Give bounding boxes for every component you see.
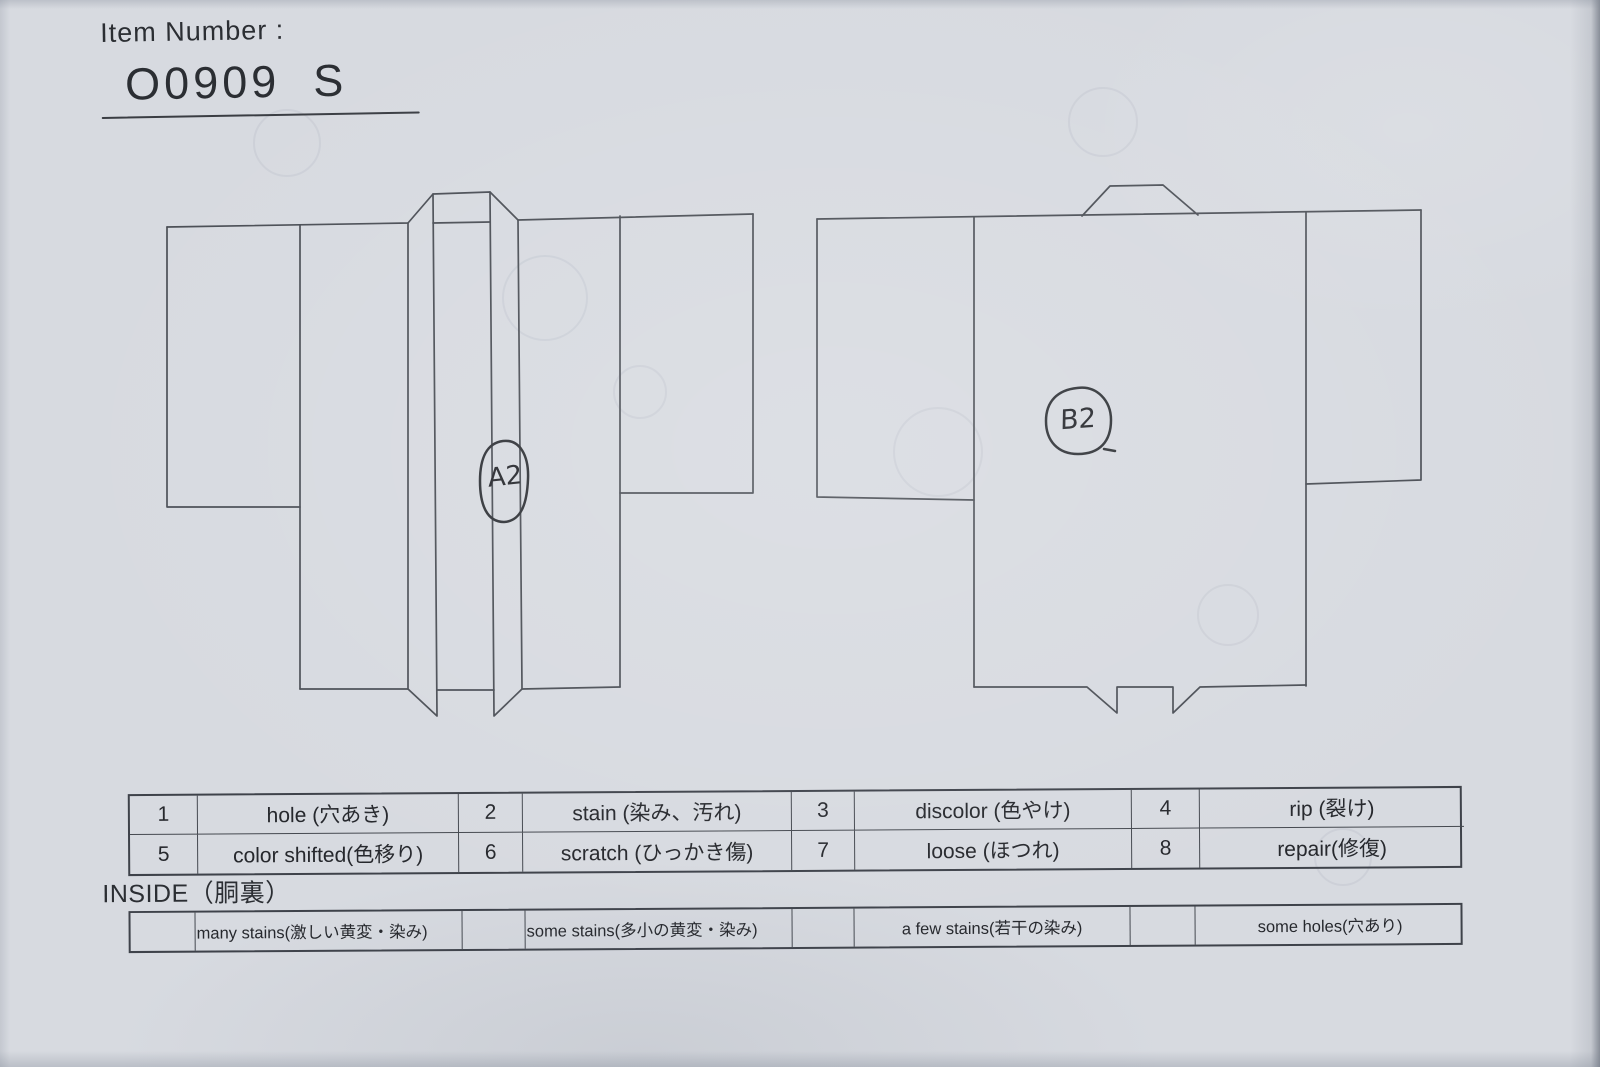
item-number-value: O0909 S [125,53,420,110]
defect-label-cell: color shifted(色移り) [198,833,459,874]
defect-code-cell: 8 [1132,829,1200,868]
defect-code-cell: 5 [130,835,198,874]
annotation-back-code: B2 [1052,402,1104,437]
checkbox-cell [1130,907,1195,945]
defect-label-cell: stain (染み、汚れ) [523,792,792,833]
defect-label-cell: scratch (ひっかき傷) [523,831,792,872]
defect-code-cell: 2 [459,794,523,833]
inside-option-label: many stains(激しい黄変・染み) [195,911,462,951]
annotation-circles [480,388,1115,522]
kimono-back-outline [817,185,1421,713]
checkbox-cell [130,913,195,951]
title-block: Item Number : O0909 S [100,12,420,119]
inside-option-label: some holes(穴あり) [1195,905,1464,945]
checkbox-cell [792,909,854,947]
item-number-label: Item Number : [100,12,418,49]
defect-label-cell: repair(修復) [1200,827,1464,868]
defect-label-cell: rip (裂け) [1200,788,1464,829]
checkbox-cell [462,911,525,949]
defect-code-cell: 7 [792,831,855,870]
defect-code-table: 1 hole (穴あき) 2 stain (染み、汚れ) 3 discolor … [128,786,1462,876]
annotation-front-code: A2 [481,460,528,495]
scanned-inspection-sheet: Item Number : O0909 S A2 B2 1 hole (穴あき)… [0,0,1600,1067]
legend-section: 1 hole (穴あき) 2 stain (染み、汚れ) 3 discolor … [128,786,1462,876]
defect-code-cell: 6 [459,833,523,872]
inside-option-label: some stains(多小の黄変・染み) [525,909,792,949]
kimono-front-outline [167,192,753,716]
defect-label-cell: hole (穴あき) [198,794,459,835]
defect-label-cell: discolor (色やけ) [855,790,1132,831]
defect-code-cell: 1 [130,796,198,835]
inside-condition-table: many stains(激しい黄変・染み) some stains(多小の黄変・… [128,903,1462,953]
inside-option-label: a few stains(若干の染み) [854,907,1130,947]
defect-label-cell: loose (ほつれ) [855,829,1132,870]
inside-section-label: INSIDE（胴裏） [102,873,291,910]
defect-code-cell: 3 [792,792,855,831]
defect-code-cell: 4 [1132,790,1200,829]
